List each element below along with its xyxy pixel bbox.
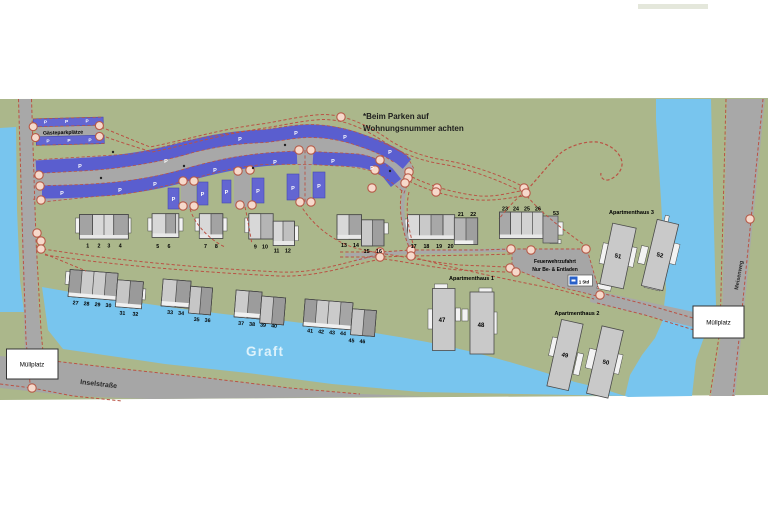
svg-text:11: 11 <box>274 249 280 255</box>
svg-text:3: 3 <box>107 244 110 250</box>
svg-text:18: 18 <box>423 244 429 250</box>
svg-text:Apartmenthaus 1: Apartmenthaus 1 <box>449 276 494 282</box>
svg-text:15: 15 <box>364 249 370 255</box>
svg-text:9: 9 <box>254 245 257 251</box>
svg-text:40: 40 <box>271 323 277 329</box>
svg-text:42: 42 <box>318 329 324 335</box>
svg-text:32: 32 <box>132 312 138 318</box>
svg-text:P: P <box>388 150 392 156</box>
svg-text:Apartmenthaus 2: Apartmenthaus 2 <box>555 311 600 317</box>
svg-text:20: 20 <box>448 244 454 250</box>
svg-text:19: 19 <box>436 244 442 250</box>
svg-text:8: 8 <box>215 244 218 250</box>
svg-text:P: P <box>294 131 298 137</box>
svg-text:22: 22 <box>470 212 476 218</box>
svg-text:P: P <box>317 184 321 190</box>
svg-text:24: 24 <box>513 207 519 213</box>
svg-text:44: 44 <box>340 331 346 337</box>
svg-text:28: 28 <box>83 301 89 307</box>
svg-text:Gästeparkplätze: Gästeparkplätze <box>43 130 83 137</box>
svg-text:P: P <box>370 166 374 172</box>
svg-text:P: P <box>153 182 157 188</box>
svg-text:16: 16 <box>376 249 382 255</box>
svg-text:10: 10 <box>262 245 268 251</box>
svg-text:14: 14 <box>353 243 359 249</box>
svg-text:41: 41 <box>307 328 313 334</box>
svg-text:53: 53 <box>553 211 559 217</box>
svg-text:31: 31 <box>119 311 125 317</box>
svg-text:P: P <box>225 190 229 196</box>
svg-text:30: 30 <box>105 303 111 309</box>
svg-text:Wohnungsnummer achten: Wohnungsnummer achten <box>363 124 464 133</box>
svg-text:Müllplatz: Müllplatz <box>706 320 730 327</box>
svg-text:Müllplatz: Müllplatz <box>20 362 44 369</box>
svg-text:4: 4 <box>119 244 122 250</box>
svg-text:35: 35 <box>193 317 199 323</box>
svg-text:P: P <box>291 186 295 192</box>
svg-text:34: 34 <box>178 311 184 317</box>
svg-text:33: 33 <box>167 310 173 316</box>
svg-text:1: 1 <box>86 244 89 250</box>
svg-text:46: 46 <box>359 339 365 345</box>
svg-text:27: 27 <box>72 300 78 306</box>
svg-text:29: 29 <box>94 302 100 308</box>
svg-text:Nur Be- & Entladen: Nur Be- & Entladen <box>532 267 578 273</box>
svg-text:P: P <box>331 159 335 165</box>
svg-text:26: 26 <box>535 207 541 213</box>
svg-text:Apartmenthaus 3: Apartmenthaus 3 <box>609 210 654 216</box>
svg-text:*Beim Parken auf: *Beim Parken auf <box>363 112 429 121</box>
svg-text:45: 45 <box>348 338 354 344</box>
svg-text:43: 43 <box>329 330 335 336</box>
svg-text:21: 21 <box>458 212 464 218</box>
svg-text:38: 38 <box>249 322 255 328</box>
svg-text:P: P <box>256 189 260 195</box>
svg-text:1 Std: 1 Std <box>579 280 590 285</box>
svg-text:37: 37 <box>238 321 244 327</box>
svg-text:6: 6 <box>168 244 171 250</box>
svg-text:13: 13 <box>341 243 347 249</box>
svg-text:P: P <box>273 160 277 166</box>
svg-text:36: 36 <box>204 318 210 324</box>
svg-text:P: P <box>343 135 347 141</box>
svg-text:25: 25 <box>524 207 530 213</box>
svg-text:P: P <box>201 192 205 198</box>
svg-text:47: 47 <box>439 318 446 324</box>
svg-text:Graft: Graft <box>246 344 284 359</box>
svg-text:5: 5 <box>156 244 159 250</box>
svg-text:2: 2 <box>98 244 101 250</box>
svg-text:7: 7 <box>204 244 207 250</box>
svg-text:48: 48 <box>478 323 485 329</box>
svg-text:P: P <box>172 197 176 203</box>
svg-text:Feuerwehrzufahrt: Feuerwehrzufahrt <box>534 259 576 265</box>
svg-text:P: P <box>118 188 122 194</box>
svg-text:P: P <box>164 159 168 165</box>
svg-text:P: P <box>78 164 82 170</box>
svg-text:39: 39 <box>260 323 266 329</box>
svg-text:P: P <box>60 191 64 197</box>
svg-text:23: 23 <box>502 207 508 213</box>
svg-text:17: 17 <box>411 244 417 250</box>
svg-text:P: P <box>238 137 242 143</box>
svg-text:12: 12 <box>285 249 291 255</box>
svg-text:P: P <box>213 168 217 174</box>
